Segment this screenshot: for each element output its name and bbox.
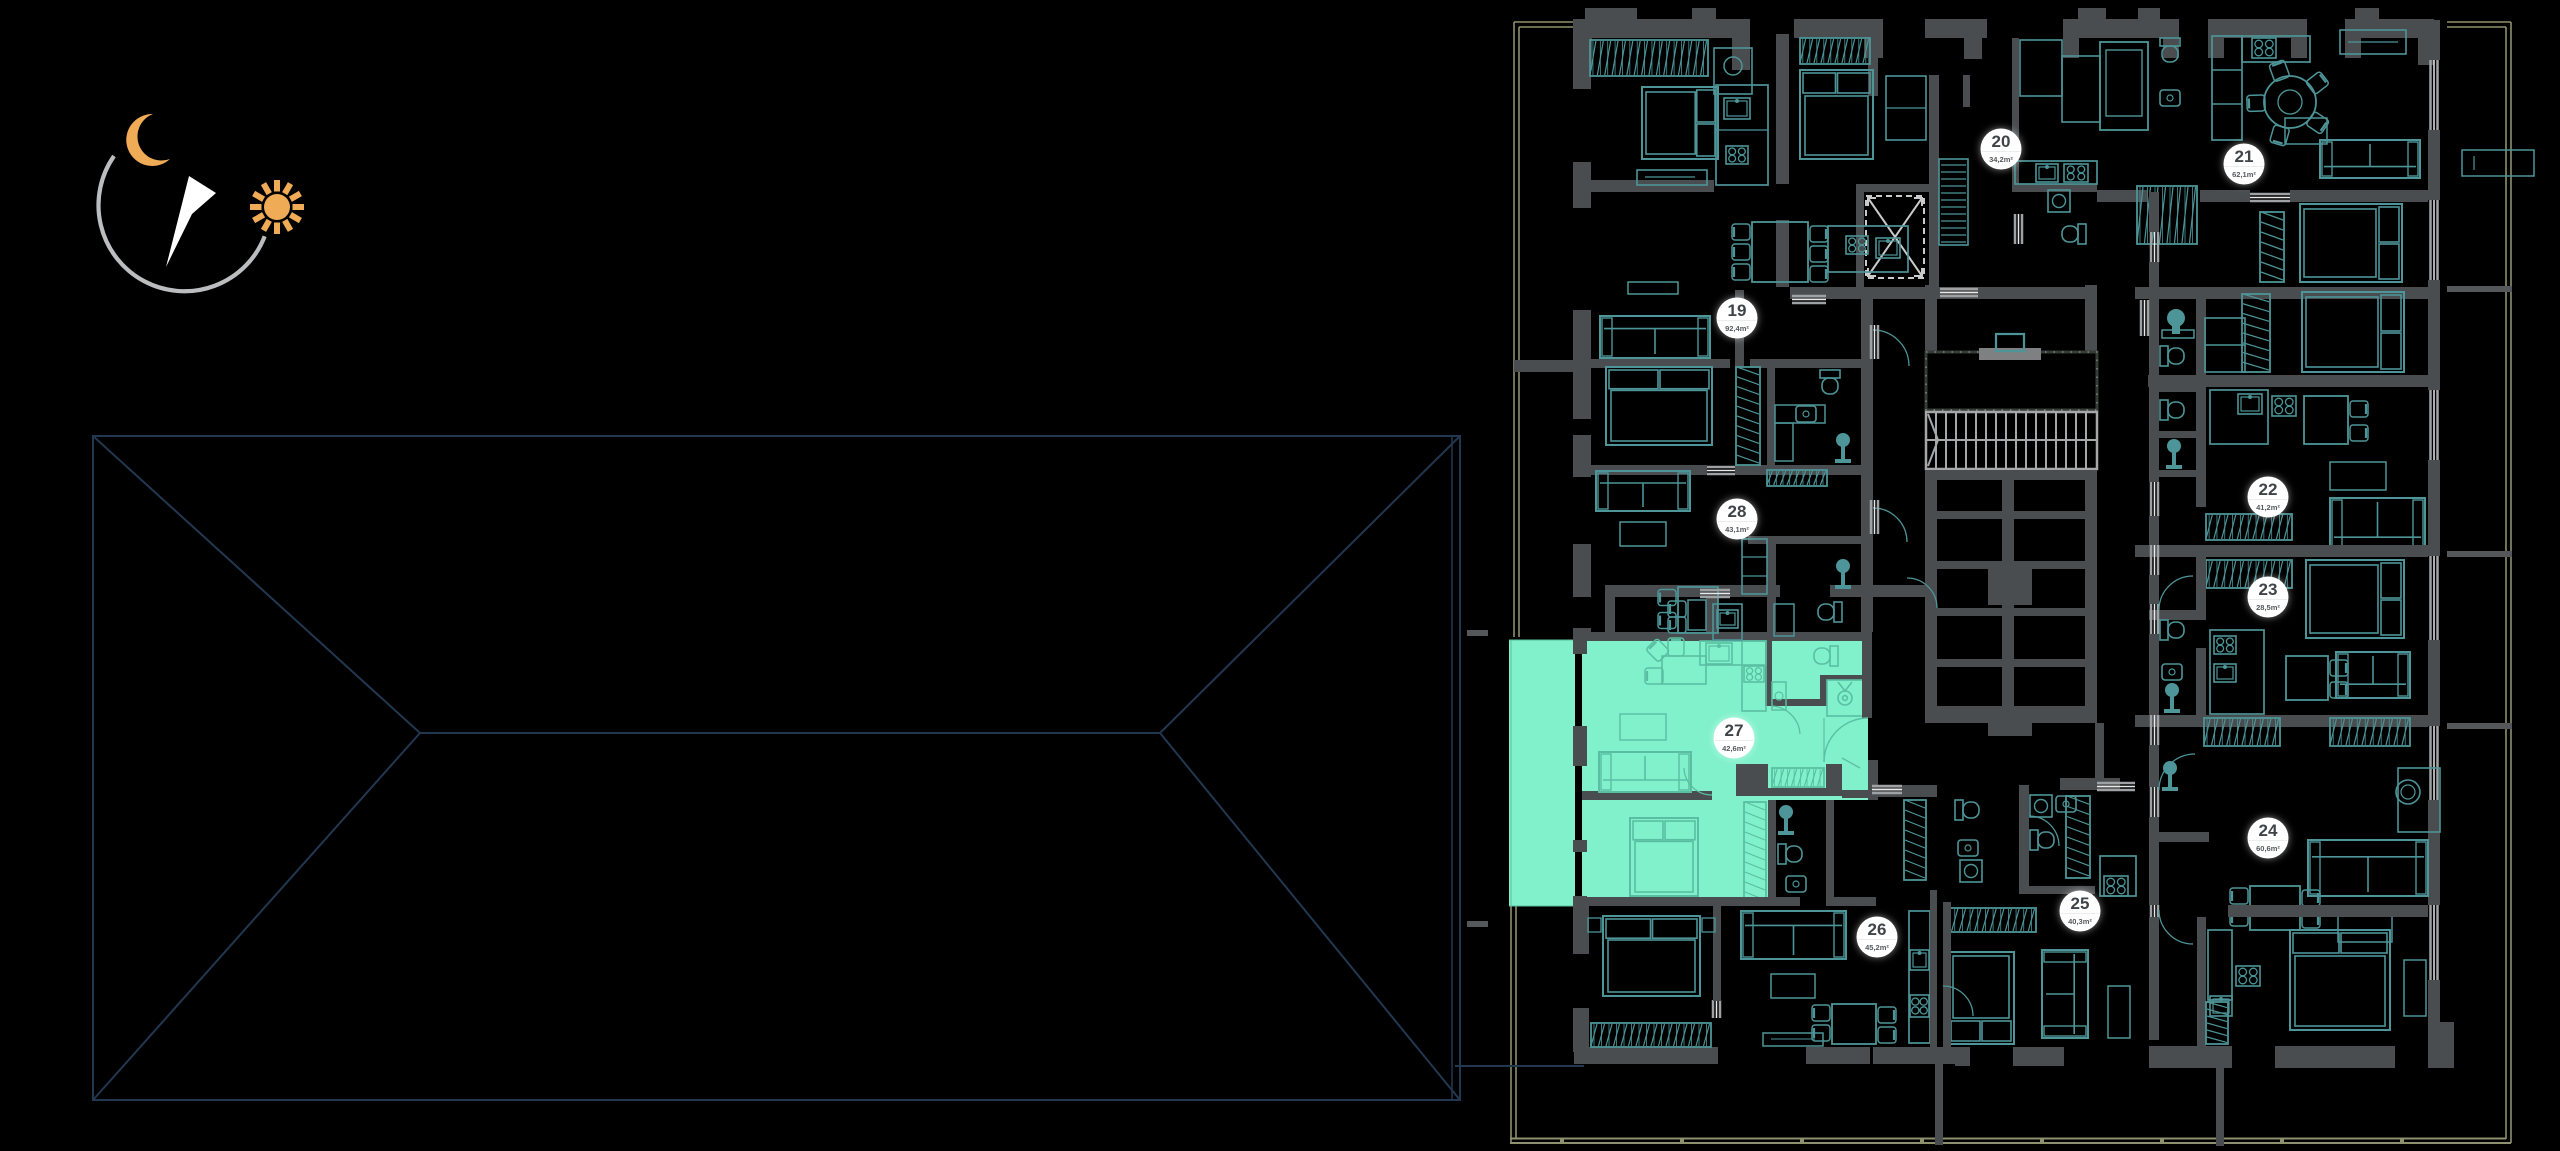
svg-text:40,3m²: 40,3m² — [2068, 917, 2092, 926]
svg-text:21: 21 — [2235, 147, 2254, 166]
svg-text:60,6m²: 60,6m² — [2256, 844, 2280, 853]
svg-text:62,1m²: 62,1m² — [2232, 170, 2256, 179]
svg-text:23: 23 — [2259, 580, 2278, 599]
svg-text:45,2m²: 45,2m² — [1865, 943, 1889, 952]
svg-text:26: 26 — [1868, 920, 1887, 939]
svg-text:24: 24 — [2259, 821, 2278, 840]
svg-text:43,1m²: 43,1m² — [1725, 525, 1749, 534]
svg-text:28,5m²: 28,5m² — [2256, 603, 2280, 612]
svg-text:22: 22 — [2259, 480, 2278, 499]
svg-text:42,6m²: 42,6m² — [1722, 744, 1746, 753]
svg-text:20: 20 — [1992, 132, 2011, 151]
svg-text:27: 27 — [1725, 721, 1744, 740]
svg-text:25: 25 — [2071, 894, 2090, 913]
svg-text:19: 19 — [1728, 301, 1747, 320]
svg-text:41,2m²: 41,2m² — [2256, 503, 2280, 512]
svg-text:28: 28 — [1728, 502, 1747, 521]
svg-text:34,2m²: 34,2m² — [1989, 155, 2013, 164]
svg-text:92,4m²: 92,4m² — [1725, 324, 1749, 333]
